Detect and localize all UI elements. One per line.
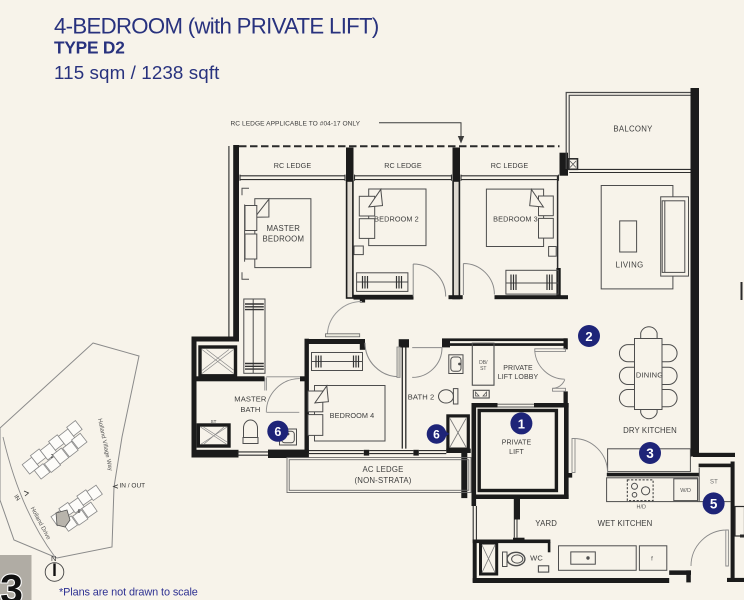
svg-text:PRIVATE: PRIVATE (502, 440, 532, 447)
svg-text:DRY KITCHEN: DRY KITCHEN (623, 426, 677, 435)
svg-text:LIVING: LIVING (616, 261, 644, 270)
svg-text:6: 6 (433, 428, 440, 442)
svg-text:LIFT: LIFT (509, 449, 524, 456)
svg-text:LIFT LOBBY: LIFT LOBBY (498, 374, 539, 381)
svg-text:2: 2 (585, 329, 592, 344)
svg-text:H/D: H/D (637, 505, 647, 511)
svg-text:MASTER: MASTER (266, 224, 300, 233)
svg-text:PRIVATE: PRIVATE (503, 365, 533, 372)
svg-text:BATH 2: BATH 2 (408, 392, 435, 401)
svg-text:2: 2 (51, 454, 54, 460)
svg-text:BEDROOM 2: BEDROOM 2 (374, 214, 419, 223)
svg-text:4-BEDROOM (with PRIVATE LIFT): 4-BEDROOM (with PRIVATE LIFT) (54, 14, 379, 39)
svg-text:6: 6 (78, 509, 81, 515)
svg-text:6: 6 (274, 425, 281, 439)
svg-text:3: 3 (646, 446, 654, 461)
svg-text:ST: ST (710, 480, 718, 486)
svg-text:RC LEDGE: RC LEDGE (491, 161, 529, 170)
svg-text:RC LEDGE: RC LEDGE (274, 161, 312, 170)
svg-text:ST: ST (480, 366, 486, 372)
svg-text:115 sqm / 1238 sqft: 115 sqm / 1238 sqft (54, 62, 220, 83)
svg-text:BEDROOM: BEDROOM (262, 235, 304, 244)
svg-text:YARD: YARD (535, 519, 557, 528)
svg-text:WC: WC (530, 554, 543, 563)
svg-text:BEDROOM 3: BEDROOM 3 (493, 214, 538, 223)
svg-text:N: N (51, 554, 56, 563)
svg-text:IN / OUT: IN / OUT (120, 483, 146, 490)
svg-text:RC LEDGE: RC LEDGE (384, 161, 422, 170)
svg-text:W/D: W/D (680, 488, 691, 494)
svg-text:DINING: DINING (636, 371, 663, 380)
svg-text:1: 1 (518, 416, 525, 431)
svg-text:5: 5 (710, 496, 718, 511)
svg-text:ST: ST (211, 419, 217, 424)
svg-text:BALCONY: BALCONY (613, 125, 653, 134)
svg-text:(NON-STRATA): (NON-STRATA) (354, 476, 411, 485)
svg-text:BEDROOM 4: BEDROOM 4 (330, 411, 375, 420)
svg-text:TYPE D2: TYPE D2 (54, 38, 125, 58)
svg-text:MASTER: MASTER (234, 395, 267, 404)
svg-text:RC LEDGE APPLICABLE TO #04-17: RC LEDGE APPLICABLE TO #04-17 ONLY (231, 121, 361, 128)
svg-text:*Plans are not drawn to scale: *Plans are not drawn to scale (59, 587, 198, 599)
svg-text:WET KITCHEN: WET KITCHEN (598, 519, 653, 528)
svg-text:BATH: BATH (240, 405, 260, 414)
svg-text:3: 3 (0, 566, 23, 600)
svg-text:AC LEDGE: AC LEDGE (362, 465, 403, 474)
